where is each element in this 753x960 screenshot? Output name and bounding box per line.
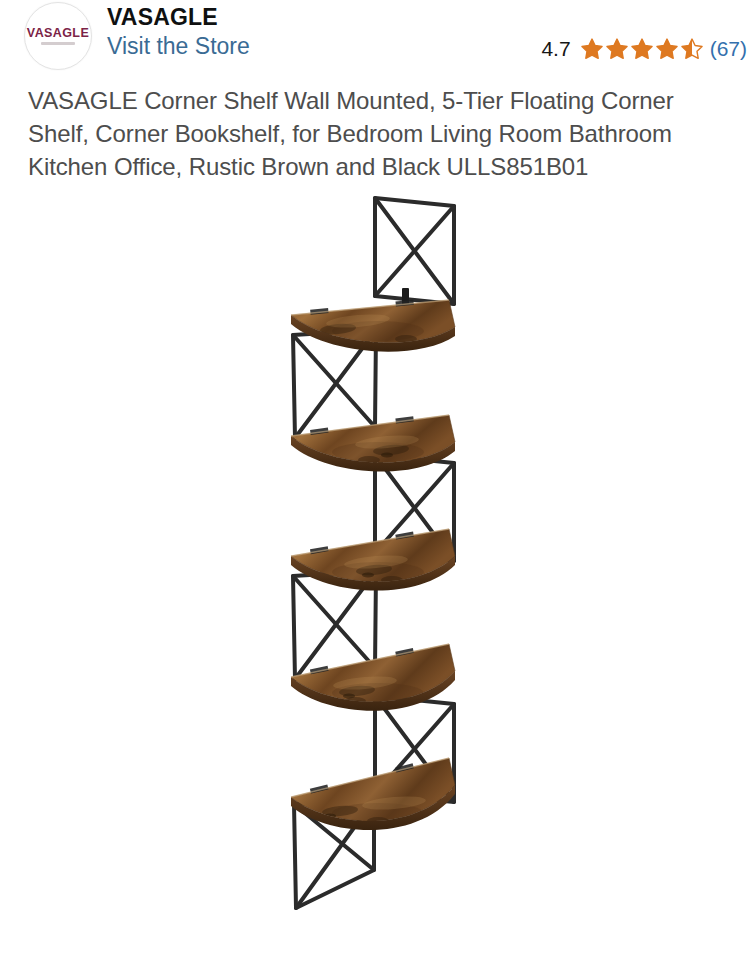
star-icon xyxy=(680,37,704,61)
product-title-line: Kitchen Office, Rustic Brown and Black U… xyxy=(28,150,674,183)
product-title-line: VASAGLE Corner Shelf Wall Mounted, 5-Tie… xyxy=(28,84,674,117)
visit-store-link[interactable]: Visit the Store xyxy=(107,33,250,60)
brand-logo[interactable]: VASAGLE xyxy=(24,2,92,70)
rating-score: 4.7 xyxy=(541,37,570,61)
star-icon xyxy=(630,37,654,61)
rating-count-link[interactable]: (67) xyxy=(710,37,747,61)
star-rating-icons[interactable] xyxy=(579,37,704,61)
brand-logo-tagline xyxy=(41,42,75,45)
product-page: VASAGLE VASAGLE Visit the Store 4.7 (67)… xyxy=(0,0,753,960)
brand-name: VASAGLE xyxy=(107,4,218,31)
star-icon xyxy=(580,37,604,61)
star-icon xyxy=(655,37,679,61)
corner-shelf-illustration xyxy=(188,190,538,920)
product-title: VASAGLE Corner Shelf Wall Mounted, 5-Tie… xyxy=(28,84,674,183)
rating-block: 4.7 (67) xyxy=(541,34,747,64)
shelf-board xyxy=(291,288,455,352)
product-image[interactable] xyxy=(188,190,538,920)
metal-x-frame xyxy=(375,198,454,304)
star-icon xyxy=(605,37,629,61)
brand-logo-text: VASAGLE xyxy=(27,27,89,40)
product-title-line: Shelf, Corner Bookshelf, for Bedroom Liv… xyxy=(28,117,674,150)
